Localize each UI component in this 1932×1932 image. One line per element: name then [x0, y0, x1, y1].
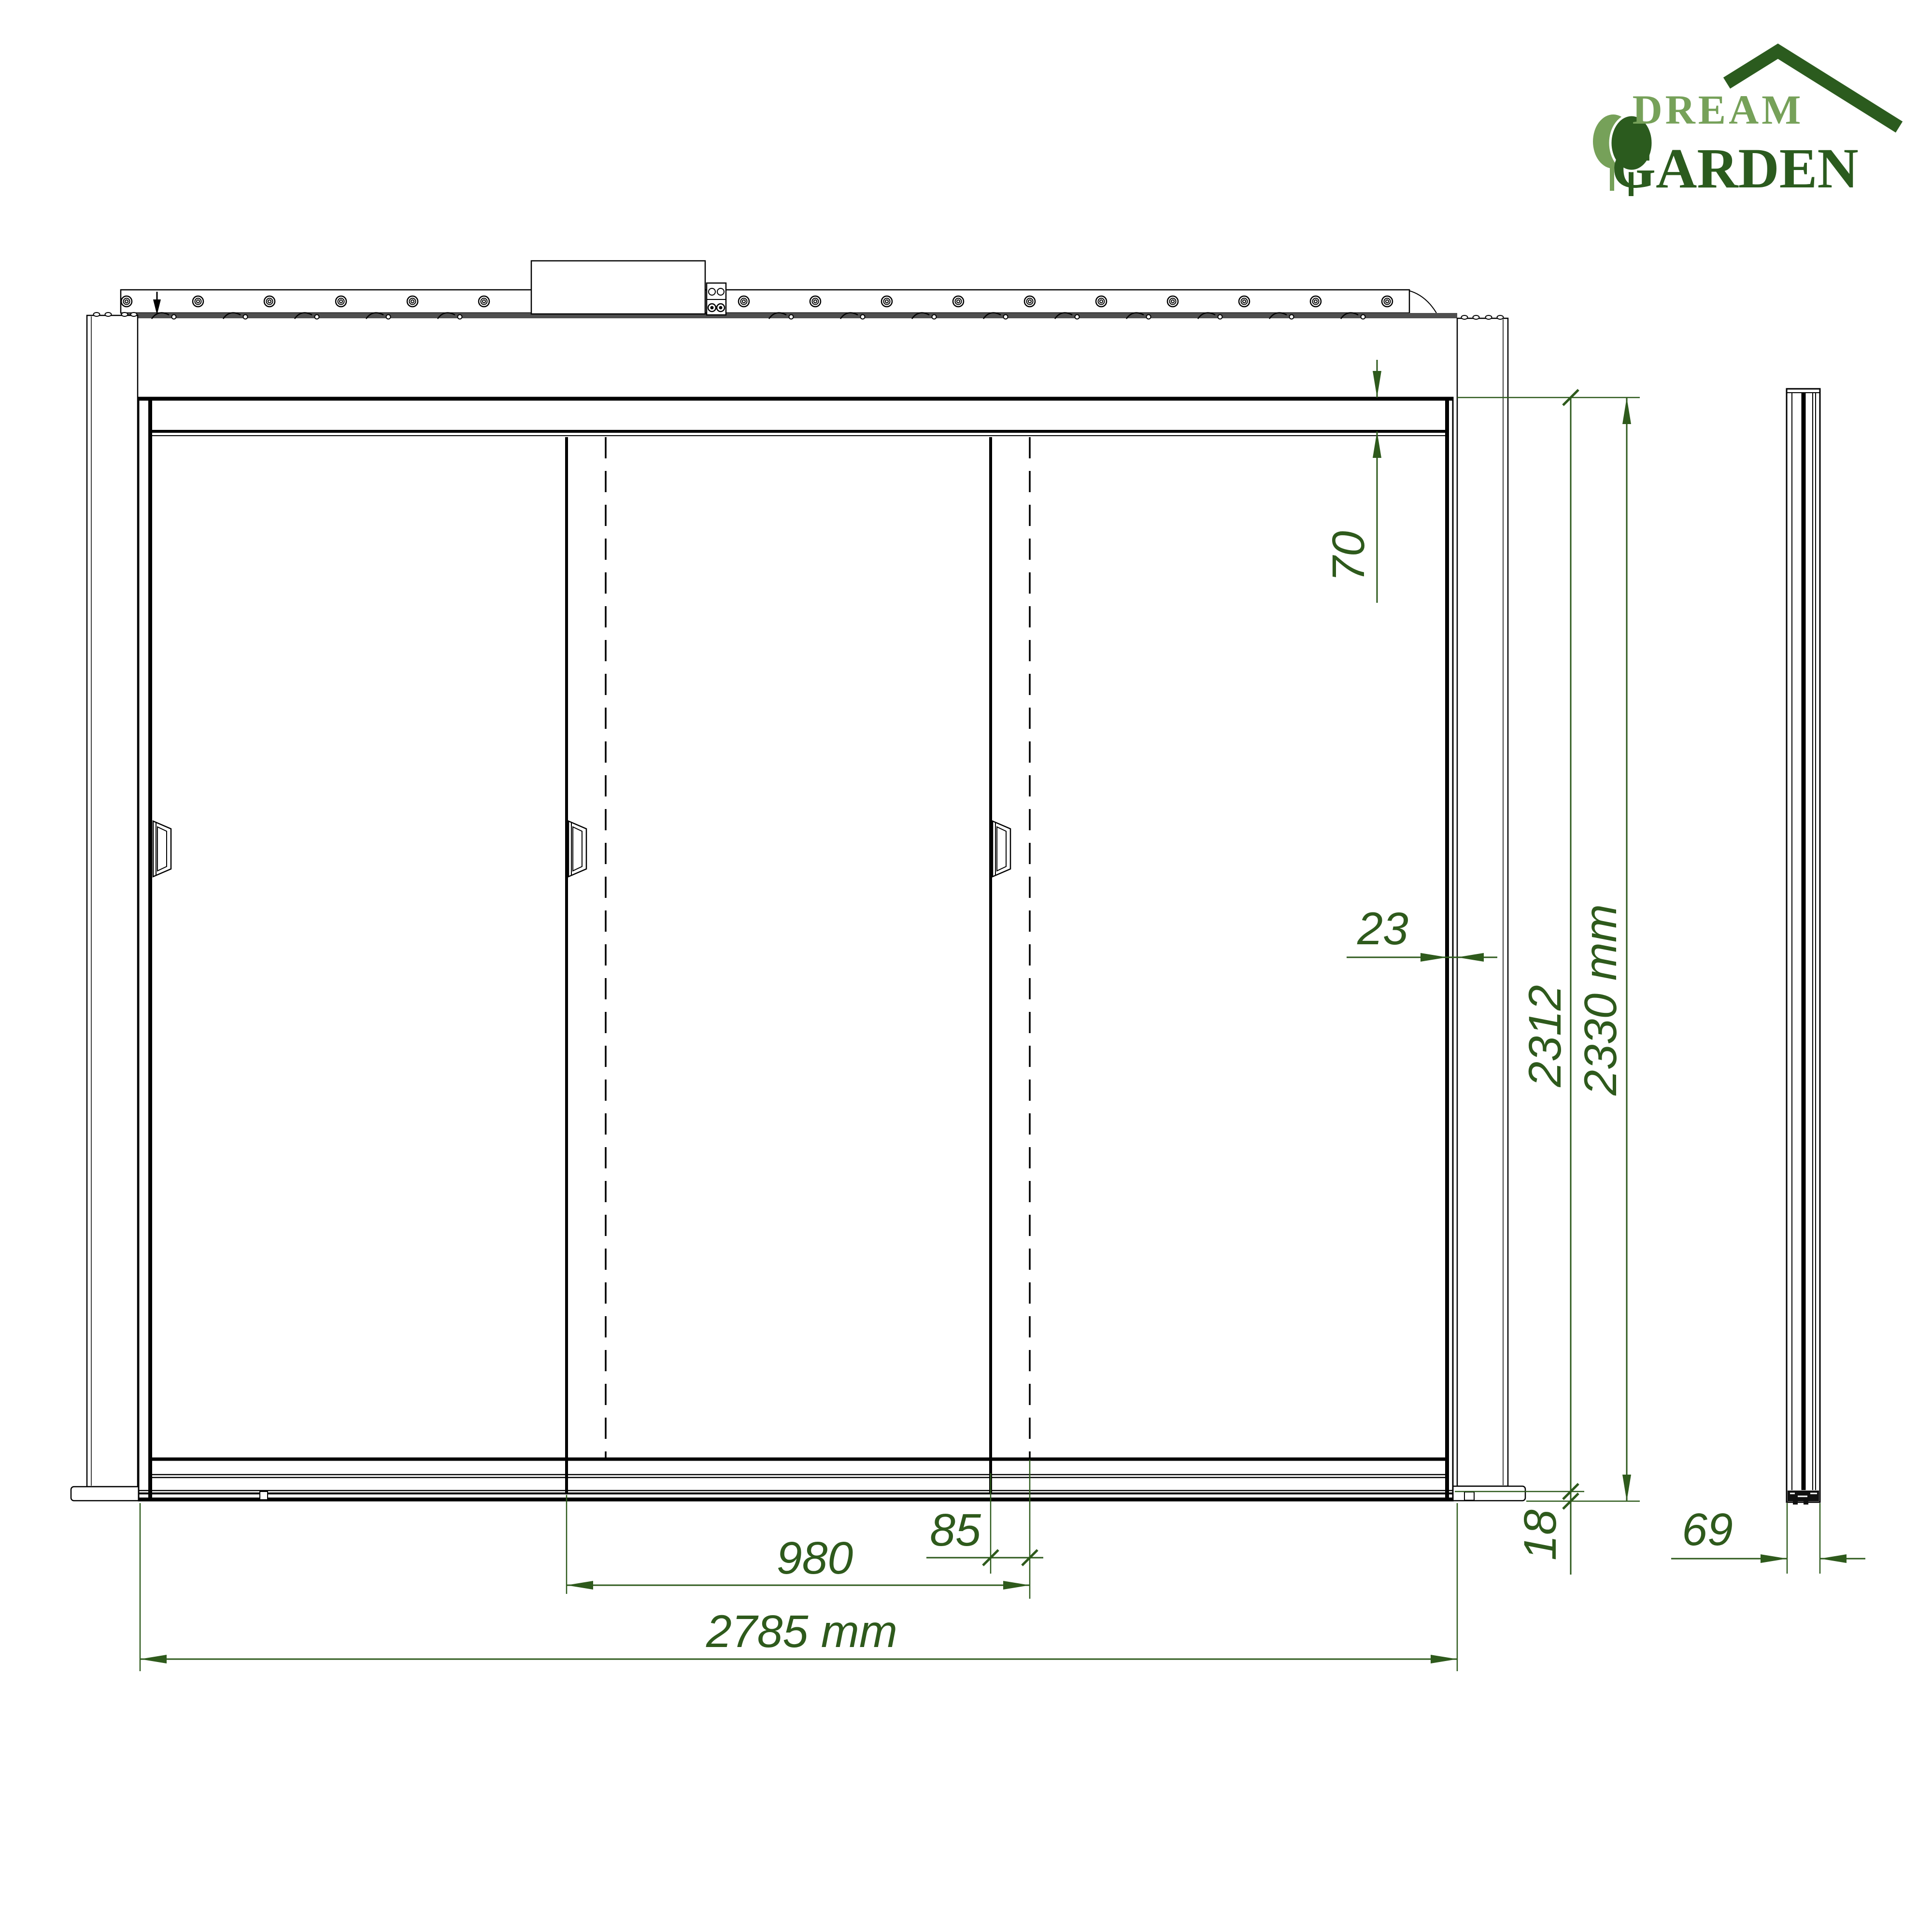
screw-icon	[1024, 296, 1035, 307]
door-handle	[568, 821, 586, 877]
screw-icon	[407, 296, 418, 307]
dimension-label-2330: 2330 mm	[1575, 904, 1626, 1096]
dimension-label-2785: 2785 mm	[706, 1606, 897, 1657]
logo-text-dream: DREAM	[1633, 86, 1804, 133]
logo-text-garden: GARDEN	[1611, 137, 1858, 200]
screw-icon	[953, 296, 964, 307]
bottom-clip-left	[260, 1492, 268, 1500]
side-view	[1787, 389, 1820, 1505]
screw-icon	[121, 296, 132, 307]
dimension-label-2312: 2312	[1520, 985, 1571, 1087]
top-track	[121, 290, 1457, 319]
door-handle	[993, 821, 1010, 877]
technical-drawing: DREAM GARDEN	[0, 0, 1932, 1932]
dimension-label-18: 18	[1515, 1509, 1566, 1561]
screw-icon	[1096, 296, 1107, 307]
right-foot-plate	[1442, 1486, 1525, 1501]
screw-icon	[1239, 296, 1250, 307]
screw-icon	[479, 296, 489, 307]
screw-icon	[810, 296, 821, 307]
door-handle	[153, 821, 171, 877]
dimension-label-69: 69	[1682, 1504, 1733, 1555]
dimension-label-70: 70	[1323, 531, 1374, 582]
drive-bracket	[707, 283, 726, 315]
front-view	[71, 261, 1525, 1501]
bottom-clip-right	[1464, 1492, 1474, 1500]
screw-icon	[739, 296, 749, 307]
screw-icon	[336, 296, 346, 307]
screw-icon	[881, 296, 892, 307]
screw-icon	[264, 296, 275, 307]
screw-icon	[1167, 296, 1178, 307]
dimension-label-23: 23	[1357, 903, 1408, 954]
dimension-label-85: 85	[930, 1505, 981, 1556]
drive-box	[531, 261, 726, 315]
door-frame	[139, 398, 1474, 1501]
dimension-bottom-rail: 18	[1515, 1509, 1566, 1561]
screw-icon	[1310, 296, 1321, 307]
screw-icon	[193, 296, 203, 307]
dimension-label-980: 980	[777, 1533, 853, 1584]
screw-icon	[1382, 296, 1392, 307]
